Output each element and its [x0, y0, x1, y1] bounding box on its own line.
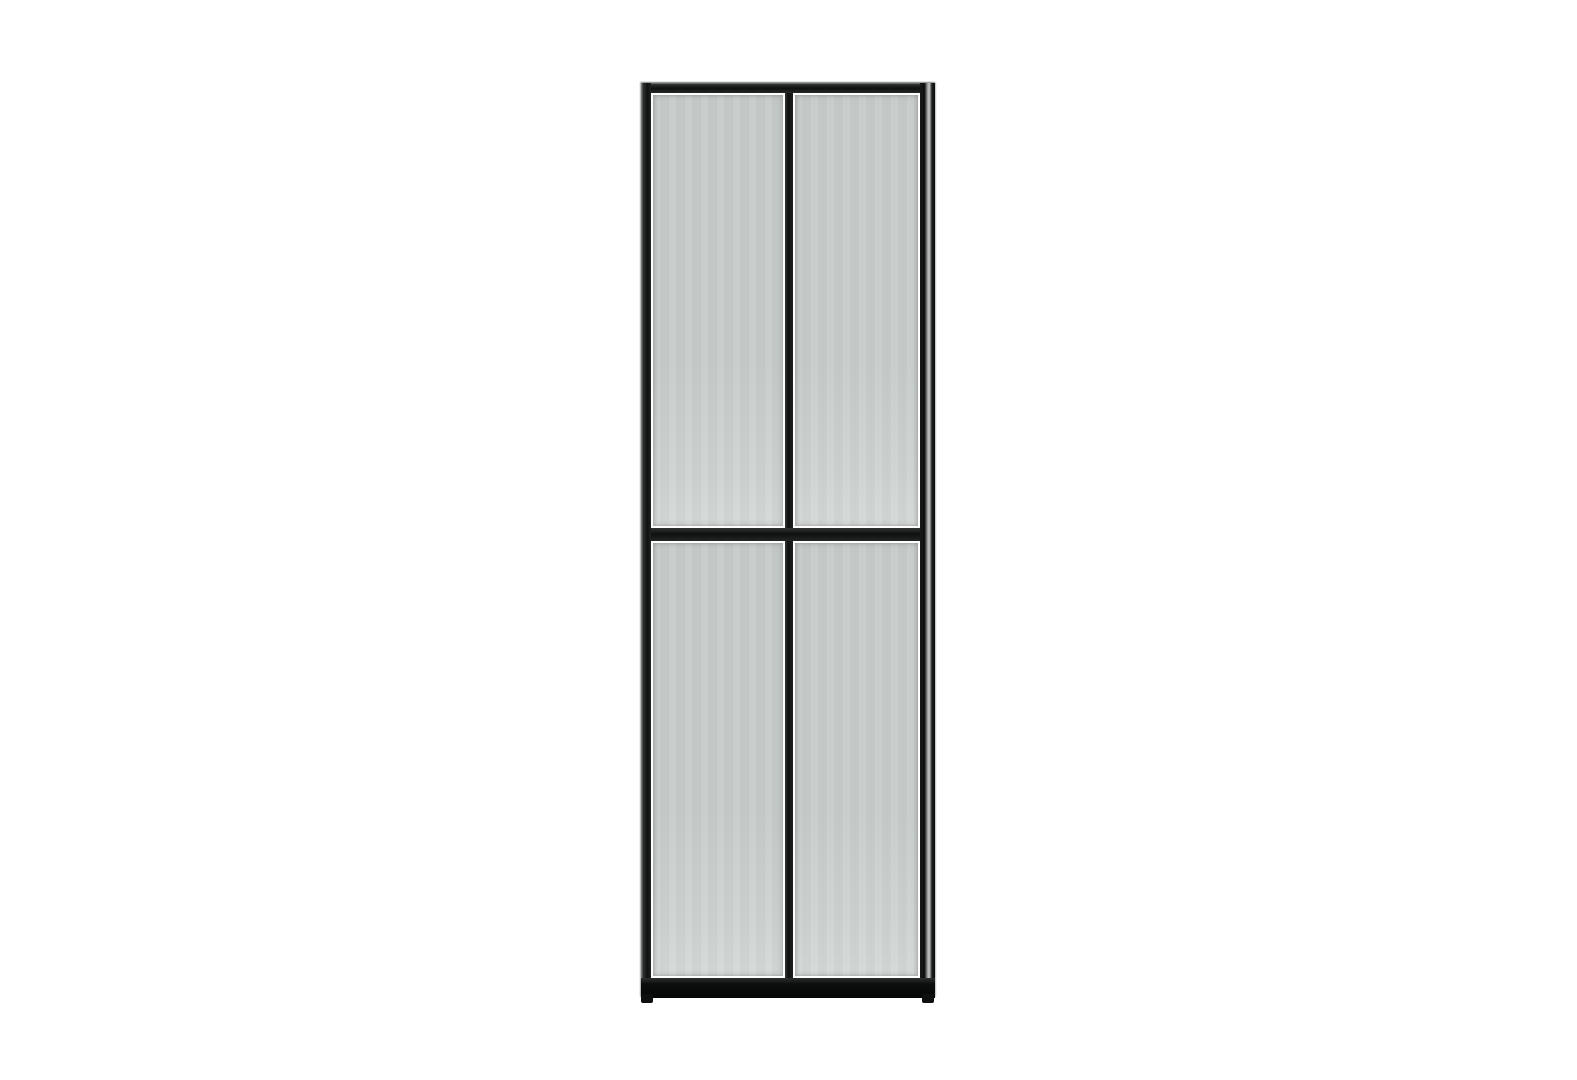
frame-top-rail: [641, 83, 935, 93]
glass-door-bottom-right: [795, 543, 918, 976]
glass-door-cabinet: [641, 83, 935, 998]
frame-middle-rail: [651, 528, 920, 541]
glass-door-bottom-left: [653, 543, 783, 976]
right-foot: [922, 994, 934, 1003]
left-foot: [641, 994, 653, 1003]
product-photo-background: [0, 0, 1577, 1080]
plinth-base: [641, 978, 935, 998]
glass-door-top-right: [795, 95, 918, 526]
frame-left-stile: [641, 83, 651, 978]
glass-door-top-left: [653, 95, 783, 526]
frame-right-stile: [920, 83, 935, 978]
